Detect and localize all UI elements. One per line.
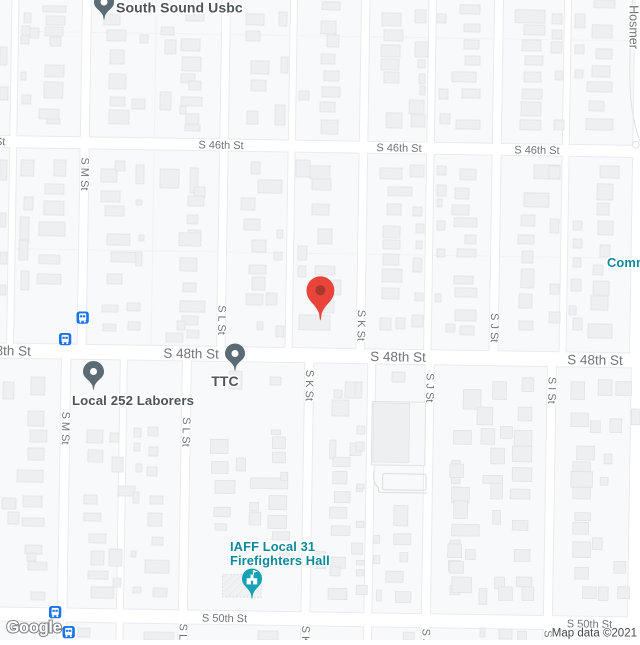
svg-text:S L St: S L St [215, 305, 227, 335]
svg-text:S 46th St: S 46th St [376, 142, 421, 155]
svg-text:S 48th St: S 48th St [370, 349, 426, 365]
svg-text:Google: Google [7, 619, 62, 637]
svg-text:TTC: TTC [211, 373, 239, 389]
svg-text:S 48th St: S 48th St [567, 352, 623, 368]
svg-text:Comm: Comm [607, 255, 640, 270]
svg-text:S K St: S K St [354, 310, 366, 341]
svg-text:Local 252 Laborers: Local 252 Laborers [72, 393, 194, 408]
svg-text:S J St: S J St [423, 373, 435, 403]
svg-text:IAFF Local 31: IAFF Local 31 [230, 539, 315, 554]
svg-text:S I St: S I St [545, 377, 557, 404]
svg-text:S J St: S J St [488, 313, 500, 343]
svg-text:S M St: S M St [78, 157, 91, 190]
svg-text:S 48th St: S 48th St [163, 346, 219, 362]
svg-text:S K St: S K St [303, 370, 315, 401]
svg-text:S 50th St: S 50th St [202, 612, 247, 625]
svg-text:S 48th St: S 48th St [0, 343, 31, 359]
svg-text:S L St: S L St [179, 417, 191, 447]
svg-text:S L St: S L St [176, 624, 188, 640]
svg-text:S K St: S K St [299, 626, 311, 640]
svg-text:S M St: S M St [59, 411, 72, 444]
svg-text:S J St: S J St [419, 628, 431, 640]
svg-text:S 46th St: S 46th St [514, 144, 559, 157]
svg-text:Firefighters Hall: Firefighters Hall [230, 553, 330, 568]
svg-text:South Sound Usbc: South Sound Usbc [116, 0, 243, 16]
svg-text:S 46th St: S 46th St [198, 139, 243, 152]
svg-text:Map data ©2021: Map data ©2021 [552, 628, 637, 640]
svg-text:Hosmer: Hosmer [627, 5, 640, 49]
svg-text:S 46th St: S 46th St [0, 136, 5, 149]
